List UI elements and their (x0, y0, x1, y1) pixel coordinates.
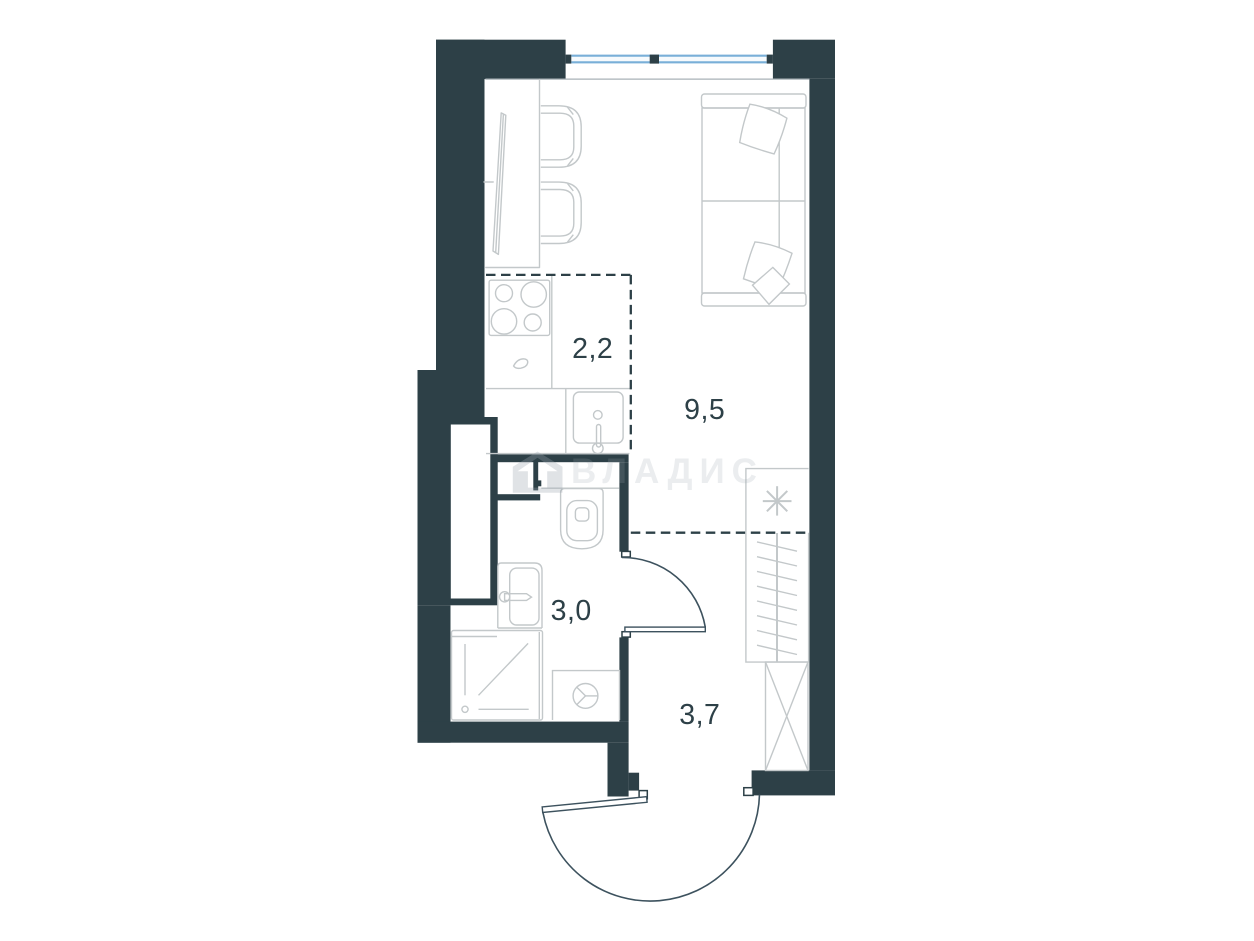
svg-text:ВЛАДИС: ВЛАДИС (571, 452, 764, 491)
svg-text:9,5: 9,5 (684, 394, 725, 426)
svg-text:2,2: 2,2 (572, 333, 613, 365)
svg-text:3,0: 3,0 (551, 595, 592, 627)
svg-text:3,7: 3,7 (679, 699, 720, 731)
